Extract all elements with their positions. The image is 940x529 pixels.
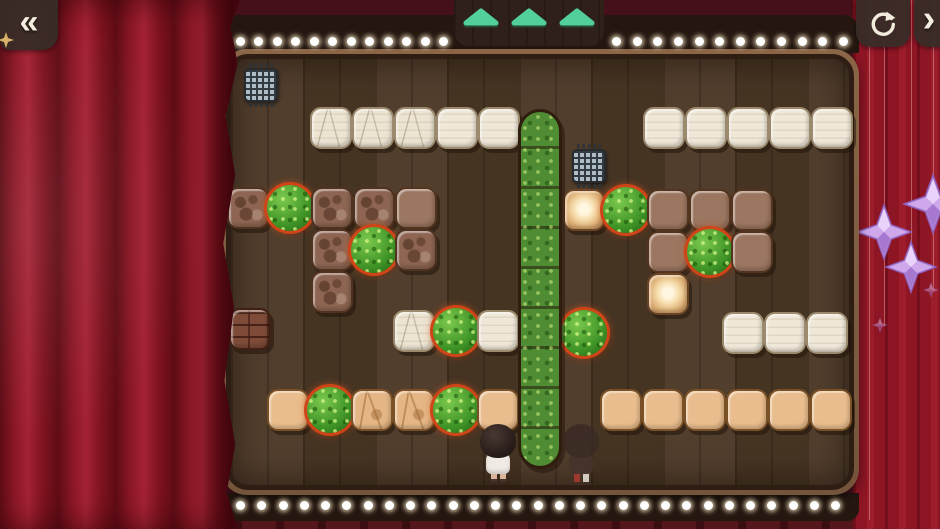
tile-bush	[267, 185, 313, 231]
tile-glow	[647, 273, 689, 315]
tile-white-marked	[394, 107, 436, 149]
tile-white	[769, 107, 811, 149]
tile-white-marked	[310, 107, 352, 149]
tile-bush	[433, 387, 479, 433]
tile-brown-marked	[311, 271, 353, 313]
tile-white	[477, 310, 519, 352]
tile-tan	[768, 389, 810, 431]
tile-tan	[642, 389, 684, 431]
tile-brown-smooth	[395, 187, 437, 229]
tile-white	[811, 107, 853, 149]
tile-tan	[810, 389, 852, 431]
tile-white	[764, 312, 806, 354]
vent-grate	[242, 62, 280, 108]
tile-glow	[563, 189, 605, 231]
player-shadow[interactable]	[561, 424, 601, 482]
tile-white	[685, 107, 727, 149]
tile-tan	[267, 389, 309, 431]
tile-tan-marked	[393, 389, 435, 431]
grate-grid-icon	[572, 149, 606, 183]
game-stage: « ›	[0, 0, 940, 529]
tile-brown-marked	[311, 229, 353, 271]
tile-brown-smooth	[689, 189, 731, 231]
tile-tan	[726, 389, 768, 431]
vent-grate	[570, 143, 608, 189]
player-left-foot	[491, 473, 497, 482]
tile-tan	[684, 389, 726, 431]
tile-bush	[687, 229, 733, 275]
chevron-right-icon: ›	[923, 0, 936, 38]
tile-bush	[351, 227, 397, 273]
hedge-wall	[518, 109, 562, 469]
undo-icon: «	[20, 5, 39, 39]
player-hair	[563, 424, 599, 458]
tile-tan-marked	[351, 389, 393, 431]
tile-brown-smooth	[647, 189, 689, 231]
tile-white	[727, 107, 769, 149]
tile-white	[806, 312, 848, 354]
tile-tan	[600, 389, 642, 431]
restart-button[interactable]	[856, 0, 910, 47]
tile-brown-smooth	[731, 189, 773, 231]
player-active[interactable]	[478, 424, 518, 482]
gold-sparkle-icon	[0, 32, 14, 48]
tile-white	[436, 107, 478, 149]
tile-white	[722, 312, 764, 354]
tile-brown-marked	[353, 187, 395, 229]
player-right-foot	[500, 473, 506, 482]
tile-brown-smooth	[647, 231, 689, 273]
grate-grid-icon	[244, 68, 278, 102]
tile-brown-marked	[311, 187, 353, 229]
tile-brown-smooth	[731, 231, 773, 273]
left-stage-curtain	[0, 0, 240, 529]
next-level-button[interactable]: ›	[914, 0, 940, 47]
tile-bush	[433, 308, 479, 354]
tile-white	[478, 107, 520, 149]
player-hair	[480, 424, 516, 458]
tile-white	[643, 107, 685, 149]
restart-icon	[867, 8, 899, 40]
tile-white-marked	[352, 107, 394, 149]
tile-bush	[307, 387, 353, 433]
tile-white-marked	[393, 310, 435, 352]
tile-bush	[603, 187, 649, 233]
undo-button[interactable]: «	[0, 0, 58, 50]
tile-brown-marked	[395, 229, 437, 271]
player-left-foot	[574, 473, 580, 482]
player-right-foot	[583, 473, 589, 482]
tile-brick	[229, 308, 271, 350]
tile-bush	[561, 310, 607, 356]
tile-brown-marked	[227, 187, 269, 229]
